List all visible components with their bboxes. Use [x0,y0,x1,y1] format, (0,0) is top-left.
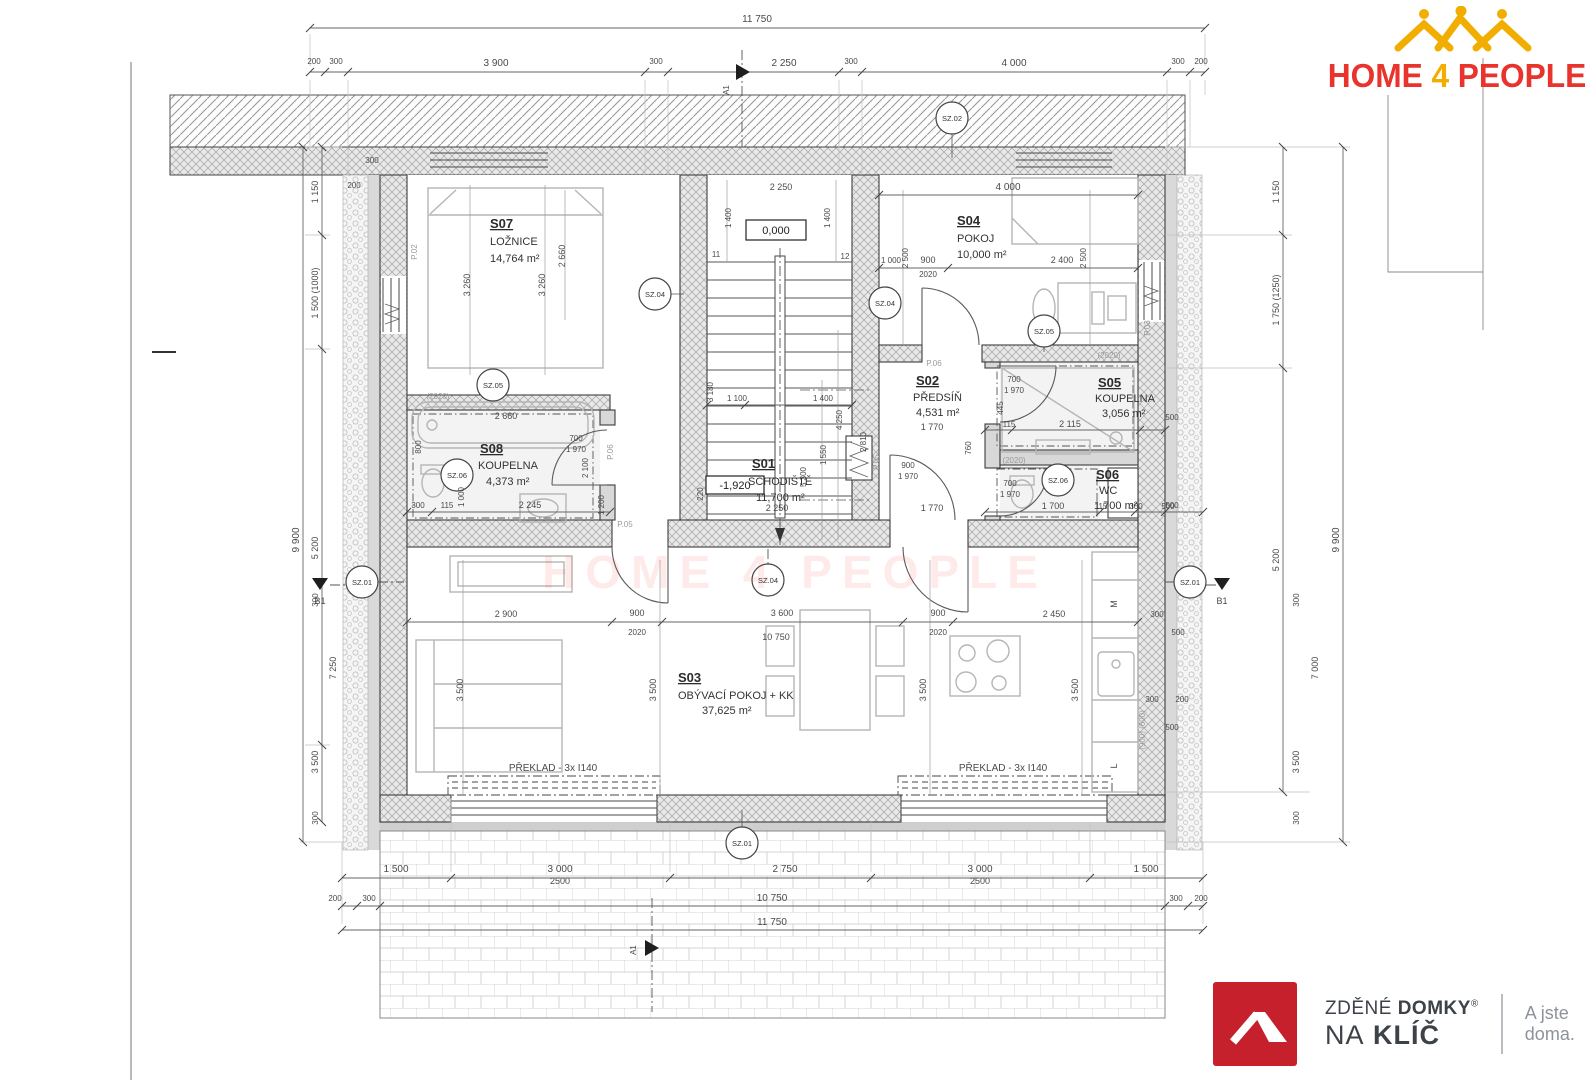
dim-label: 900 [930,608,945,618]
p06-marker: P.06 [606,444,615,460]
dim-label: 2 500 [1079,247,1088,268]
dim-label: 760 [964,441,973,455]
room-id: S07 [490,216,513,231]
dim-label: 7 250 [328,657,338,680]
dim-label: 300 [649,57,663,66]
dim-label: 1 970 [566,445,587,454]
logo-word-home: HOME [1328,57,1423,95]
dim-label: 2 245 [519,500,542,510]
dim-label: 2020 [628,628,646,637]
dim-label: 300 [1169,894,1183,903]
brand-tagline: A jste doma. [1525,1003,1590,1045]
stair-number: 11 [712,250,721,259]
dim-label: 2 450 [1043,609,1066,619]
dim-label: 2 750 [772,864,797,875]
a1-arrow-top [736,64,750,80]
dim-label: 1 400 [813,394,834,403]
dim-label: 115 [441,501,454,510]
dim-label: 3 000 [967,864,992,875]
dim-label: 5 200 [1271,549,1281,572]
dim-label: 300 [329,57,343,66]
b1-arrow-left [312,578,328,590]
dim-label: 1 770 [921,422,944,432]
dim-label: 1 100 [727,394,748,403]
room-area: 4,373 m² [486,476,530,488]
b1-arrow-right [1214,578,1230,590]
dim-label: 220 [696,487,705,501]
dim-label: 200 [1194,894,1208,903]
brand-na: NA [1325,1020,1365,1050]
dim-label: 300 [1292,593,1301,607]
brand-text: ZDĚNÉ DOMKY® NA KLÍČ [1325,998,1479,1050]
dim-label: 2 500 [901,247,910,268]
dim-label: 300 [1145,695,1159,704]
dim-label: 800 [414,440,423,454]
zdene-domky-logo: ZDĚNÉ DOMKY® NA KLÍČ A jste doma. [1213,982,1590,1066]
dim-label: 1 970 [898,472,919,481]
dim-label: 300 [844,57,858,66]
room-area: 3,056 m² [1102,408,1146,420]
dim-label: 3 000 [547,864,572,875]
dim-label: 1 150 [1271,181,1281,204]
dim-label: 700 [569,434,583,443]
sz04-marker: SZ.04 [875,299,895,308]
brand-klic: KLÍČ [1373,1020,1440,1050]
dim-label: 4 250 [835,409,844,430]
dim-label: 3 500 [310,751,320,774]
lintel-label: PŘEKLAD - 3x I140 [959,761,1048,774]
dim-label: 3 600 [771,608,794,618]
sz01-marker: SZ.01 [732,839,752,848]
dim-label: 1 000 [881,256,902,265]
dim-label: 9 900 [1331,527,1342,552]
dim-label: 300 [365,156,379,165]
dim-label: 200 [328,894,342,903]
logo-word-people: PEOPLE [1458,57,1587,95]
a1-label: A1 [722,85,731,95]
dim-label: 200 [347,181,361,190]
dim-label: 2 810 [859,431,868,452]
divider [1501,994,1503,1054]
dim-label: 3 500 [1291,751,1301,774]
dim-label: 3 260 [537,274,547,297]
dim-label: 300 [1150,610,1164,619]
dim-label: 2020 [929,628,947,637]
room-id: S05 [1098,375,1121,390]
dim-label: 2 900 [495,609,518,619]
dim-label: 3 500 [918,679,928,702]
dim-label: 700 [1003,479,1017,488]
logo-word-four: 4 [1431,57,1449,95]
dim-label: 900 [920,255,935,265]
room-area: 10,000 m² [957,249,1007,261]
dim-label: 2500 [970,876,990,886]
room-id: S06 [1096,467,1119,482]
dim-label: 900 [901,461,915,470]
dim-label: 115 [1003,420,1016,429]
dim-label: 3 900 [483,58,508,69]
dim-label: 445 [996,401,1005,415]
p05-marker: P.05 [872,454,881,470]
dim-label: 300 [1292,811,1301,825]
brand-zdene: ZDĚNÉ [1325,998,1392,1019]
roof-icon [1213,982,1297,1066]
floorplan-page: HOME 4 PEOPLE 11 750 200 300 3 900 300 2… [0,0,1590,1080]
floor-plan-drawing: HOME 4 PEOPLE 11 750 200 300 3 900 300 2… [0,0,1590,1080]
room-id: S08 [480,441,503,456]
dim-label: 3 500 [1070,679,1080,702]
room-id: S02 [916,373,939,388]
dim-label: 900 [629,608,644,618]
room-name: POKOJ [957,233,994,245]
p05-marker: P.05 [617,520,633,529]
dim-label: 3 500 [455,679,465,702]
lintel-label: PŘEKLAD - 3x I140 [509,761,598,774]
b1-label: B1 [314,596,325,606]
sz01-marker: SZ.01 [1180,578,1200,587]
dim-label: 4 000 [995,182,1020,193]
dim-label: 1 970 [1004,386,1025,395]
sz02-marker: SZ.02 [942,114,962,123]
dim-label: 2 250 [770,182,793,192]
sz04-marker: SZ.04 [645,290,665,299]
dim-label: 700 [1007,375,1021,384]
registered-icon: ® [1471,999,1479,1010]
dim-label: 11 750 [742,14,772,25]
dim-label: 200 [307,57,321,66]
dim-label: 1 500 (1000) [310,267,320,318]
dim-label: 4 000 [1001,58,1026,69]
watermark-text: HOME 4 PEOPLE [542,546,1048,598]
dim-label: 300 [362,894,376,903]
room-name: KOUPELNA [478,460,539,472]
dim-label: 3 180 [706,381,715,402]
room-name: LOŽNICE [490,235,538,248]
room-name: WC [1099,485,1117,497]
dim-label: 2 400 [1051,255,1074,265]
dim-label: 1 500 [383,864,408,875]
room-name: PŘEDSÍŇ [913,391,962,404]
dim-label: 500 [1161,502,1175,511]
dim-label: 1 150 [310,181,320,204]
stair-number: 12 [841,252,850,261]
sz06-marker: SZ.06 [1048,476,1068,485]
dim-label: 10 750 [762,632,790,642]
dim-label: (2020) [426,392,449,401]
level-zero: 0,000 [762,225,790,237]
dim-label: 5 200 [310,537,320,560]
b1-label: B1 [1216,596,1227,606]
home4people-logo: HOME 4 PEOPLE [1342,6,1572,95]
dim-label: 500 [1165,723,1179,732]
dim-label: 1 400 [724,207,733,228]
dim-label: 1 500 [1133,864,1158,875]
dim-label: 7 000 [1310,657,1320,680]
level-minus: -1,920 [719,480,750,492]
room-area: 14,764 m² [490,253,540,265]
dim-label: 300 [1171,57,1185,66]
dim-label: (2020) [1097,351,1120,360]
dim-label: 300 [311,811,320,825]
a1-label: A1 [629,945,638,955]
dim-label: 2 115 [1059,419,1081,429]
sz01-marker: SZ.01 [352,578,372,587]
dim-label: 1 200 [597,494,606,515]
dim-label: 2 250 [766,503,789,513]
p06-marker: P.06 [926,359,942,368]
room-area: 11,700 m² [756,492,805,504]
dim-label: 200 [1194,57,1208,66]
room-id: S01 [752,456,775,471]
dim-label: 500 [1165,413,1179,422]
sz06-marker: SZ.06 [447,471,467,480]
dim-label: 1 970 [1000,490,1021,499]
sz04-marker: SZ.04 [758,576,778,585]
dim-label: 2500 [550,876,570,886]
dim-label: 1 000 [457,486,466,507]
room-name: KOUPELNA [1095,393,1156,405]
sz05-marker: SZ.05 [1034,327,1054,336]
dim-label: 3 500 [648,679,658,702]
dim-label: 1 550 [819,444,828,465]
dim-label: 2020 [919,270,937,279]
home4people-crown-icon [1342,6,1572,52]
dim-label: 200 [1175,695,1189,704]
brand-domky: DOMKY [1398,998,1471,1019]
dim-label: 9 900 [291,527,302,552]
dim-label: 2 250 [771,58,796,69]
dim-label: 2 660 [557,245,567,268]
dim-label: 1 750 (1250) [1271,274,1281,325]
room-area: 4,531 m² [916,407,960,419]
p02-marker: P.02 [410,244,419,260]
dim-label: 1 700 [1042,501,1065,511]
dim-label: 2 100 [581,457,590,478]
p03-marker: P.03 [1143,320,1152,336]
room-id: S03 [678,670,701,685]
room-id: S04 [957,213,981,228]
room-area: 37,625 m² [702,705,752,717]
dim-label: 10 750 [757,893,788,904]
dim-label: 1 770 [921,503,944,513]
dim-label: 3 260 [462,274,472,297]
dim-label: 1 400 [823,207,832,228]
dim-label: (2020) [1002,456,1025,465]
dim-label: 500 [1171,628,1185,637]
dim-label: 300 [411,501,425,510]
room-area: 1,700 m² [1094,500,1138,512]
sz05-marker: SZ.05 [483,381,503,390]
dim-label: 2 660 [495,411,518,421]
dishwasher-label: M [1109,600,1119,608]
dim-label: (900) (600) [1138,710,1147,750]
room-name: SCHODIŠTĚ [748,475,812,488]
dim-label: 11 750 [757,917,787,928]
fridge-label: L [1109,763,1119,768]
room-name: OBÝVACÍ POKOJ + KK [678,689,794,702]
